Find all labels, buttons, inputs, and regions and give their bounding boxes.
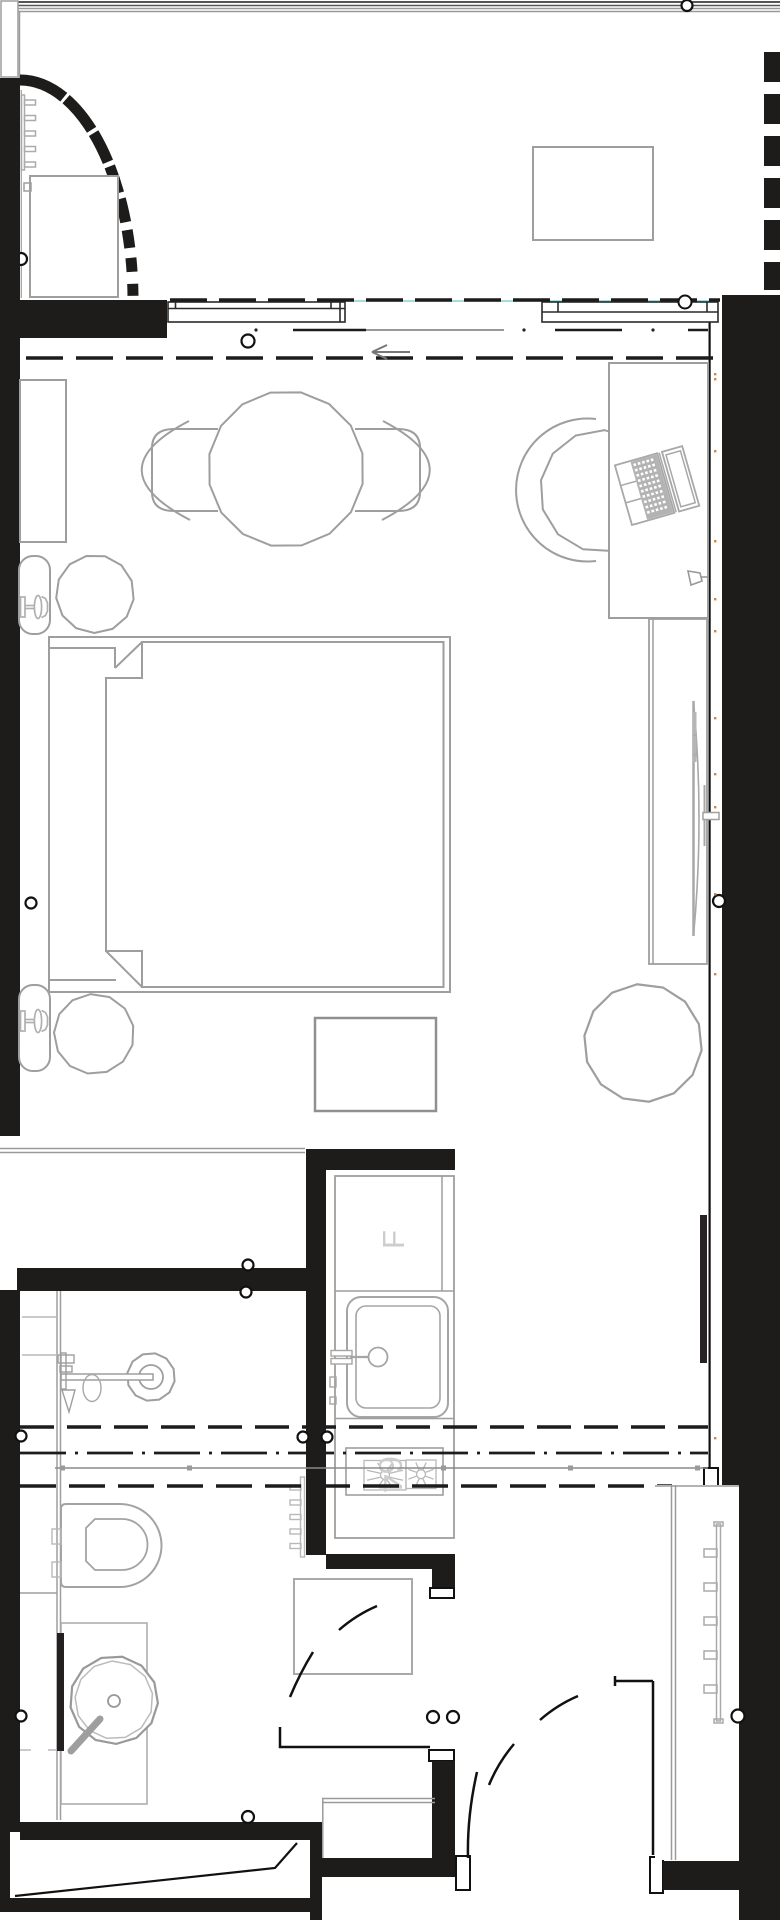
svg-text:F: F	[376, 1230, 411, 1249]
